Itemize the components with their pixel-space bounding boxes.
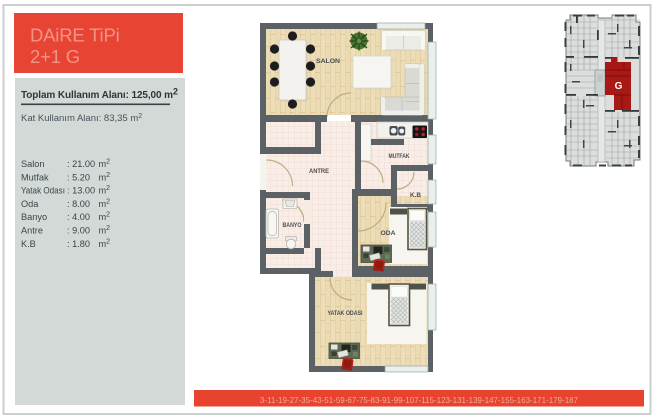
svg-text:ANTRE: ANTRE (309, 168, 329, 175)
svg-text:: 9.00: : 9.00 (67, 226, 90, 236)
svg-text:Yatak Odası: Yatak Odası (21, 186, 65, 196)
svg-text:Antre: Antre (21, 226, 43, 236)
svg-text:Salon: Salon (21, 159, 45, 169)
svg-text:Banyo: Banyo (21, 212, 47, 222)
svg-text:ODA: ODA (381, 230, 397, 237)
svg-text:K.B: K.B (21, 239, 36, 249)
svg-text:2+1 G: 2+1 G (30, 46, 80, 67)
svg-text:BANYO: BANYO (283, 222, 302, 229)
svg-text:: 21.00: : 21.00 (67, 159, 95, 169)
svg-text:: 4.00: : 4.00 (67, 212, 90, 222)
svg-text:K.B: K.B (410, 193, 422, 199)
svg-text:Mutfak: Mutfak (21, 172, 49, 182)
svg-text:SALON: SALON (316, 58, 341, 65)
svg-text:: 5.20: : 5.20 (67, 172, 90, 182)
svg-text:MUTFAK: MUTFAK (389, 153, 410, 160)
svg-text:: 13.00: : 13.00 (67, 186, 95, 196)
svg-text:Oda: Oda (21, 199, 39, 209)
svg-text:Kat Kullanım Alanı: 83,35 m2: Kat Kullanım Alanı: 83,35 m2 (21, 113, 142, 124)
svg-text:3-11-19-27-35-43-51-59-67-75-8: 3-11-19-27-35-43-51-59-67-75-83-91-99-10… (260, 396, 579, 405)
svg-text:YATAK ODASI: YATAK ODASI (328, 310, 363, 317)
svg-text:: 1.80: : 1.80 (67, 239, 90, 249)
svg-text:: 8.00: : 8.00 (67, 199, 90, 209)
svg-text:G: G (615, 81, 623, 92)
svg-text:DAiRE TiPi: DAiRE TiPi (30, 25, 120, 46)
